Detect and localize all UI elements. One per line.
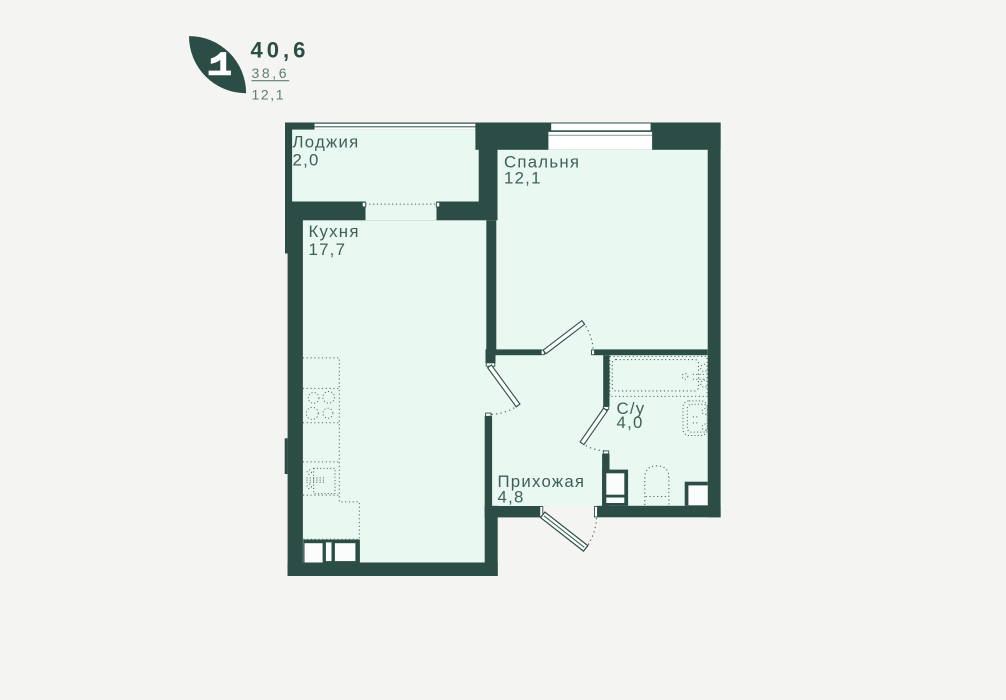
svg-text:2,0: 2,0 [293, 151, 320, 170]
svg-text:40,6: 40,6 [251, 38, 310, 63]
svg-text:12,1: 12,1 [504, 169, 542, 188]
svg-text:17,7: 17,7 [309, 240, 347, 259]
svg-text:Лоджия: Лоджия [293, 133, 360, 152]
svg-text:12,1: 12,1 [252, 86, 286, 102]
svg-text:4,8: 4,8 [498, 488, 525, 507]
svg-text:38,6: 38,6 [252, 65, 290, 81]
svg-text:4,0: 4,0 [617, 413, 644, 432]
svg-text:Кухня: Кухня [309, 222, 360, 241]
